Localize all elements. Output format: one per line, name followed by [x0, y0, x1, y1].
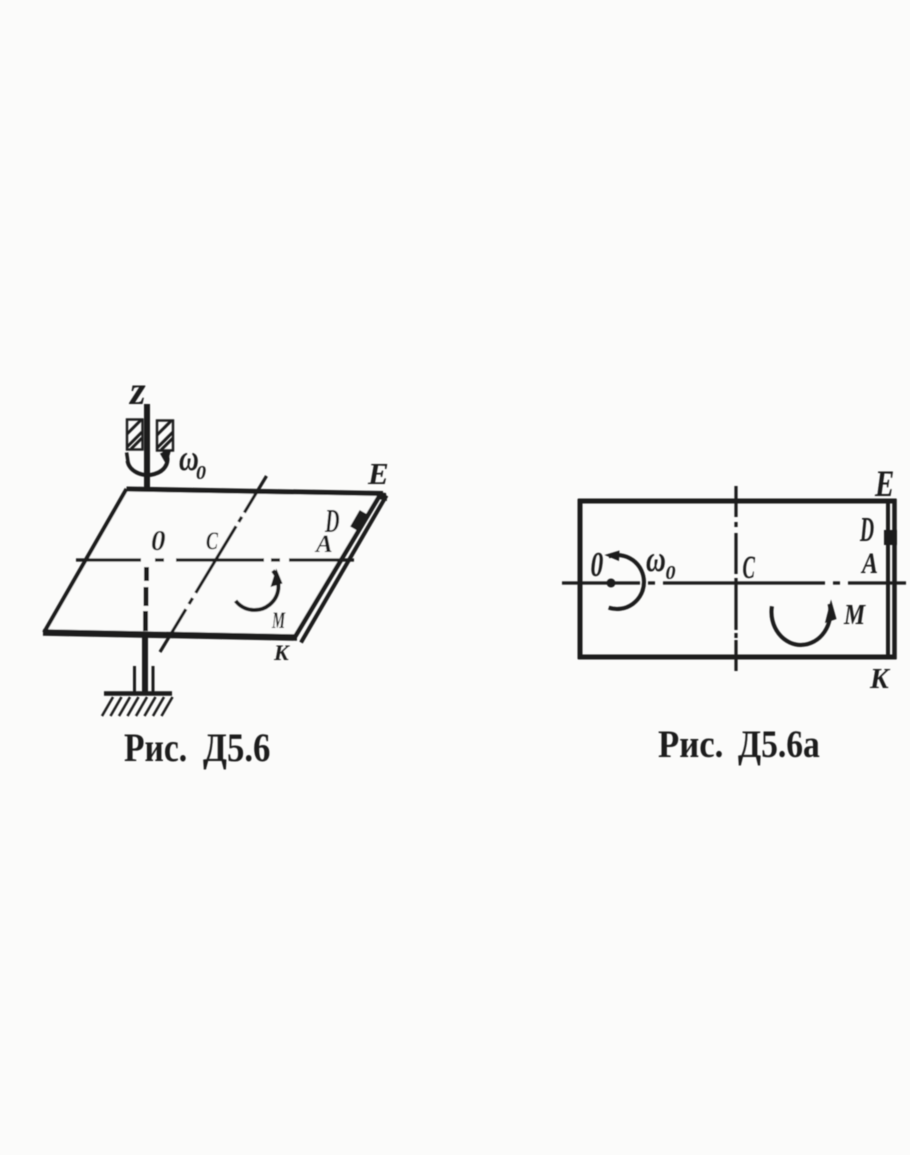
svg-text:E: E [874, 464, 894, 505]
svg-text:E: E [367, 456, 389, 491]
svg-text:C: C [743, 549, 756, 586]
svg-text:D: D [859, 511, 874, 549]
svg-text:K: K [869, 664, 891, 695]
svg-text:M: M [843, 599, 866, 630]
svg-text:z: z [128, 368, 146, 413]
svg-text:Рис.: Рис. [124, 725, 187, 769]
svg-text:K: K [273, 640, 290, 665]
svg-text:A: A [860, 546, 878, 579]
svg-text:0: 0 [151, 525, 166, 557]
svg-text:D: D [324, 502, 339, 540]
svg-text:ω: ω [646, 539, 666, 580]
svg-text:Д5.6а: Д5.6а [738, 723, 820, 766]
svg-text:Рис.: Рис. [658, 722, 723, 765]
svg-text:0: 0 [666, 562, 676, 584]
svg-text:C: C [206, 527, 218, 555]
svg-text:M: M [271, 609, 286, 634]
svg-text:0: 0 [196, 462, 206, 484]
svg-text:Д5.6: Д5.6 [203, 727, 270, 771]
svg-text:0: 0 [591, 545, 604, 584]
